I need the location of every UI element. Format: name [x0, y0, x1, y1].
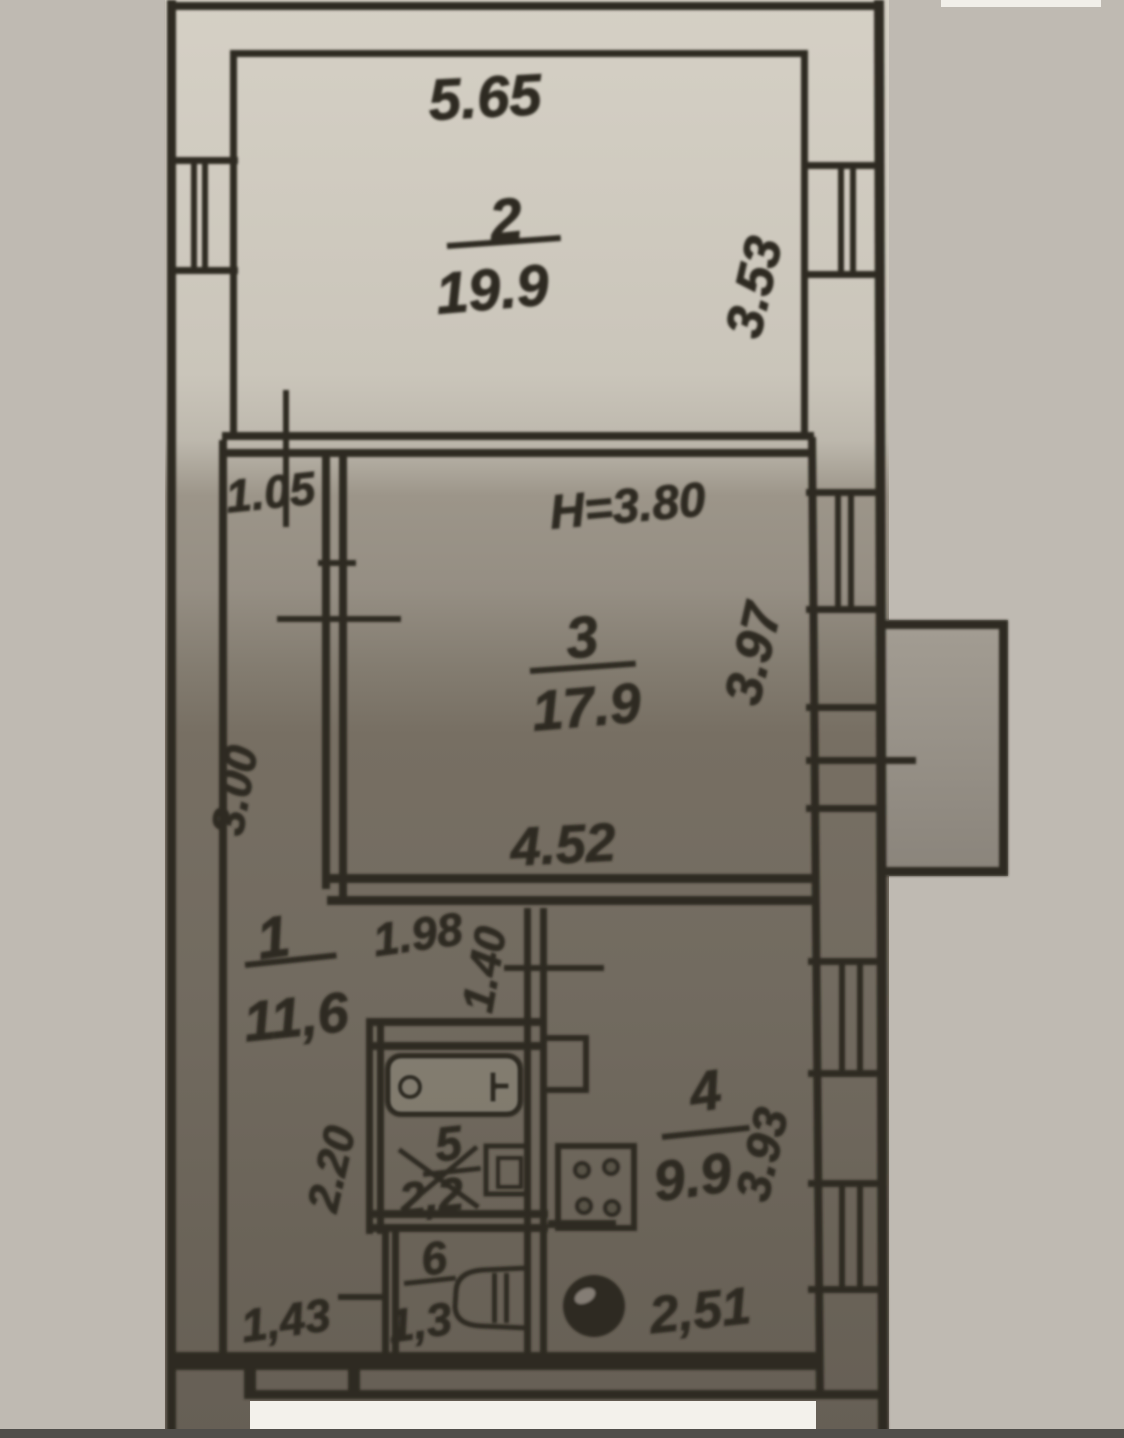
svg-text:5.65: 5.65 — [427, 62, 544, 133]
svg-text:19.9: 19.9 — [433, 252, 551, 327]
svg-text:9.9: 9.9 — [649, 1140, 735, 1213]
svg-text:3: 3 — [563, 604, 602, 672]
svg-text:11,6: 11,6 — [241, 980, 353, 1054]
svg-text:1,3: 1,3 — [384, 1292, 455, 1352]
svg-text:2,51: 2,51 — [646, 1277, 754, 1345]
svg-text:17.9: 17.9 — [529, 670, 643, 742]
svg-text:1.05: 1.05 — [223, 461, 319, 522]
svg-text:4.52: 4.52 — [508, 812, 617, 877]
